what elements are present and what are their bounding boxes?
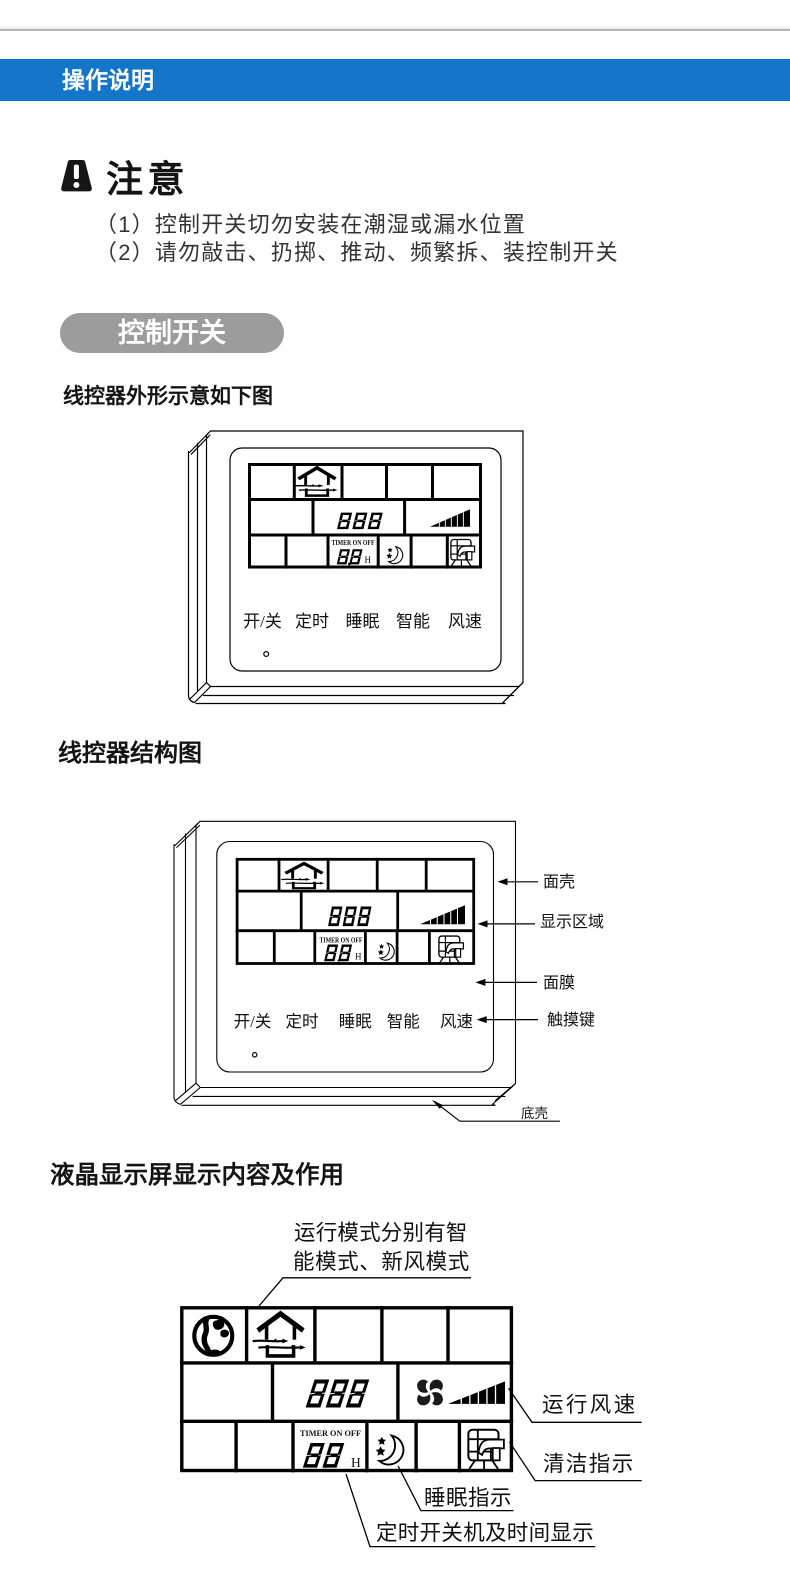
svg-text:H: H [355, 952, 362, 962]
svg-text:TIMER ON OFF: TIMER ON OFF [332, 539, 375, 547]
svg-text:TIMER ON OFF: TIMER ON OFF [320, 937, 363, 945]
svg-text:TIMER ON OFF: TIMER ON OFF [300, 1428, 361, 1438]
svg-text:H: H [351, 1455, 361, 1470]
svg-text:H: H [365, 555, 372, 565]
